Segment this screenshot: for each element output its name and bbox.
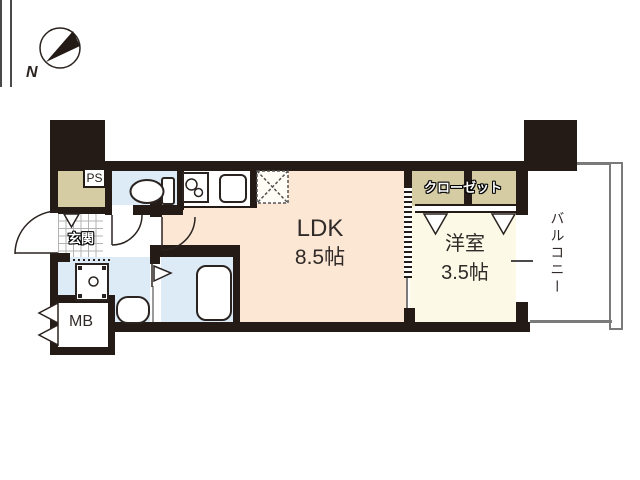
compass-n-label: N	[26, 64, 38, 81]
closet-door-v-icon	[64, 214, 79, 227]
balcony-label: バルコニー	[549, 196, 564, 311]
stove-burner-icon	[183, 173, 208, 202]
room-label-ldk: LDK	[270, 216, 370, 242]
room-size-ldk: 8.5帖	[270, 246, 370, 269]
floor-plan: N LDK 8.5帖 洋室 3.5帖 クローゼット 玄関 バルコニー PS MB	[0, 0, 640, 480]
washbasin-icon	[117, 297, 149, 323]
meter-box-label: MB	[56, 313, 106, 331]
room-label-western: 洋室	[414, 233, 516, 255]
pipe-space-box: PS	[83, 168, 106, 188]
kitchen-sink-icon	[220, 175, 246, 202]
pipe-space-label: PS	[86, 171, 102, 185]
compass-north-icon: N	[20, 15, 100, 85]
washing-machine-icon	[73, 260, 110, 300]
bathtub-icon	[197, 266, 231, 320]
door-swing-icon	[112, 215, 142, 245]
refrigerator-space-icon	[257, 171, 288, 203]
closet-door-v-icon	[424, 214, 515, 234]
bath-door-flag-icon	[152, 262, 171, 287]
door-swing-icon	[15, 211, 58, 254]
room-size-western: 3.5帖	[414, 262, 516, 284]
toilet-icon	[131, 178, 175, 204]
door-swing-icon	[162, 217, 195, 250]
entrance-label: 玄関	[58, 232, 104, 246]
closet-label: クローゼット	[410, 181, 516, 195]
